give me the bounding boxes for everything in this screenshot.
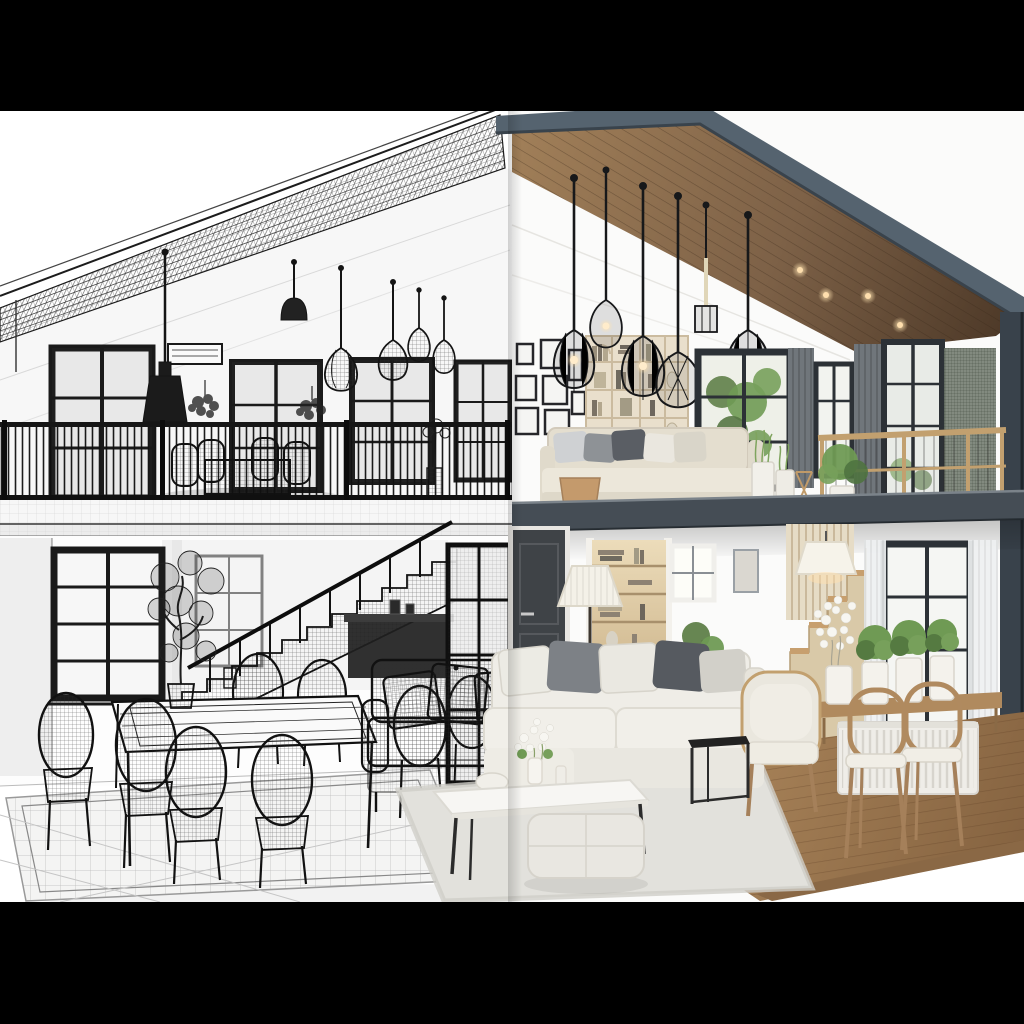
loft-window-tall [884, 342, 942, 508]
tree-pot [168, 684, 194, 708]
balcony-railing [0, 420, 512, 500]
ottoman [524, 814, 648, 894]
table-vase [224, 668, 236, 688]
wall-art [734, 550, 758, 592]
ac-unit [168, 344, 222, 364]
flower-vase [528, 758, 542, 784]
loft-sofa-pillows [553, 429, 707, 464]
scene-canvas [0, 0, 1024, 1024]
style-split-seam [508, 110, 522, 902]
house-cutaway-illustration [0, 0, 1024, 1024]
railing-top-rail [0, 422, 512, 427]
white-sectional-sofa [484, 640, 766, 802]
letterbox-top [0, 0, 1024, 111]
hall-small-window [672, 546, 714, 600]
letterbox-bottom [0, 902, 1024, 1024]
